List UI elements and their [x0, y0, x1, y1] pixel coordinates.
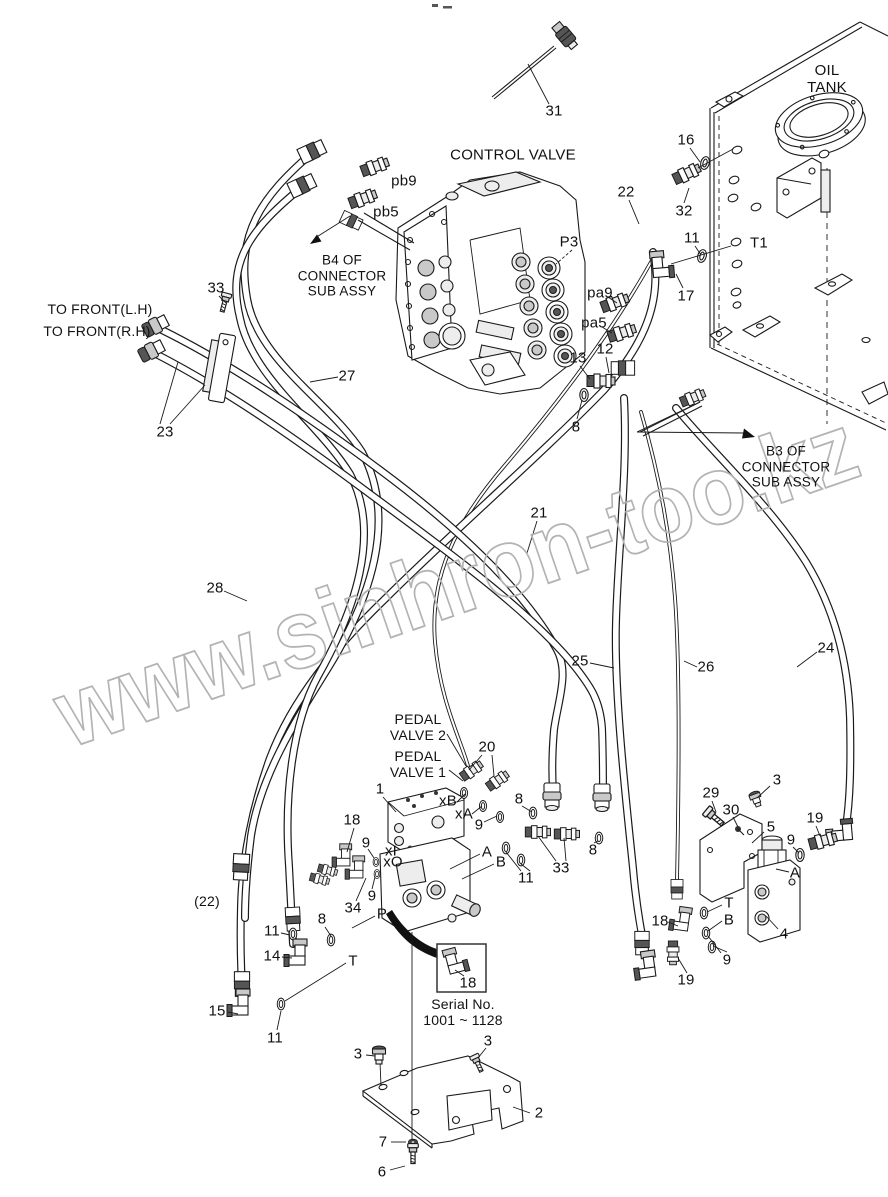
mounting-bracket-drawing [363, 1056, 523, 1148]
pedal-valve-drawing [380, 788, 482, 932]
watermark-text: www.sinhron-too.kz [40, 391, 871, 768]
control-valve-drawing [396, 172, 585, 394]
diagram-artwork: www.sinhron-too.kz [0, 0, 888, 1197]
oil-tank-drawing [710, 22, 888, 430]
solenoid-valve-drawing [700, 814, 800, 942]
page-artifact-marks [432, 4, 452, 9]
needle-part-drawing [492, 20, 580, 99]
parts-diagram-page: www.sinhron-too.kz 31OIL TANKCONTROL VAL… [0, 0, 888, 1197]
